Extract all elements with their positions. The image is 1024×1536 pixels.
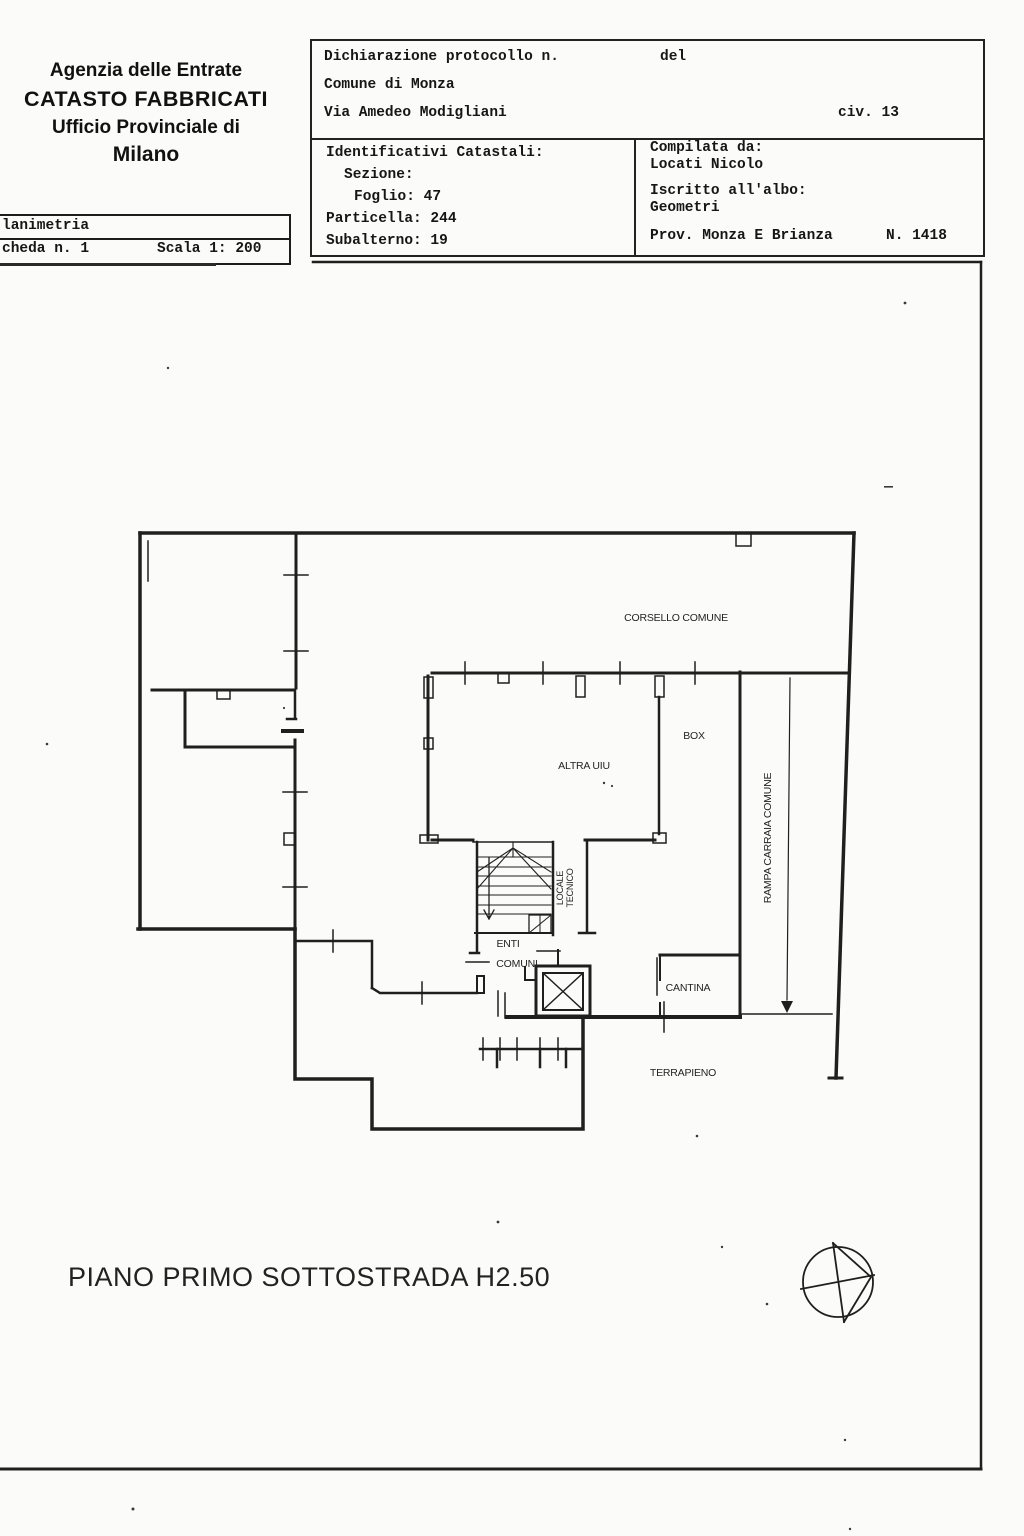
label-corsello-comune: CORSELLO COMUNE — [624, 612, 728, 624]
label-altra-uiu: ALTRA UIU — [558, 760, 610, 772]
wall-top-notch — [736, 535, 751, 546]
notch-corsello-wall — [498, 675, 509, 683]
label-comuni: COMUNI — [496, 958, 537, 970]
north-arrow-compass-icon — [801, 1243, 874, 1322]
wall-hook — [287, 690, 296, 719]
rampa-arrow-line — [787, 678, 790, 1000]
elevator-cross — [543, 973, 583, 1010]
wall-pillar-tab — [284, 833, 295, 845]
wall-corridor-993 — [372, 988, 477, 993]
floor-plan-drawing: CORSELLO COMUNE BOX ALTRA UIU RAMPA CARR… — [0, 0, 1024, 1536]
label-locale: LOCALE — [555, 871, 565, 906]
pillar-box-top — [655, 676, 664, 697]
cadastral-document-page: Agenzia delle Entrate CATASTO FABBRICATI… — [0, 0, 1024, 1536]
parking-stubs — [497, 1049, 566, 1067]
stair-small-box-detail — [529, 915, 551, 933]
wall-inner-941 — [296, 941, 372, 988]
stair-left-wall — [470, 842, 479, 953]
label-cantina: CANTINA — [666, 982, 711, 994]
wall-right-tilted — [836, 533, 854, 1078]
label-box: BOX — [683, 730, 705, 742]
label-tecnico: TECNICO — [565, 868, 575, 907]
locale-tecnico-right-wall — [579, 842, 595, 933]
pillar-576 — [576, 676, 585, 697]
wall-small-room-bottom — [185, 740, 295, 754]
label-enti: ENTI — [496, 938, 519, 950]
wall-pillar-477 — [477, 976, 484, 993]
wall-boundary-zigzag — [295, 929, 583, 1129]
rampa-arrow-head — [781, 1001, 793, 1013]
stair-winder-diagonals — [477, 848, 551, 889]
label-rampa-carraia: RAMPA CARRAIA COMUNE — [762, 773, 774, 904]
label-terrapieno: TERRAPIENO — [650, 1067, 716, 1079]
wall-bump — [217, 692, 230, 699]
